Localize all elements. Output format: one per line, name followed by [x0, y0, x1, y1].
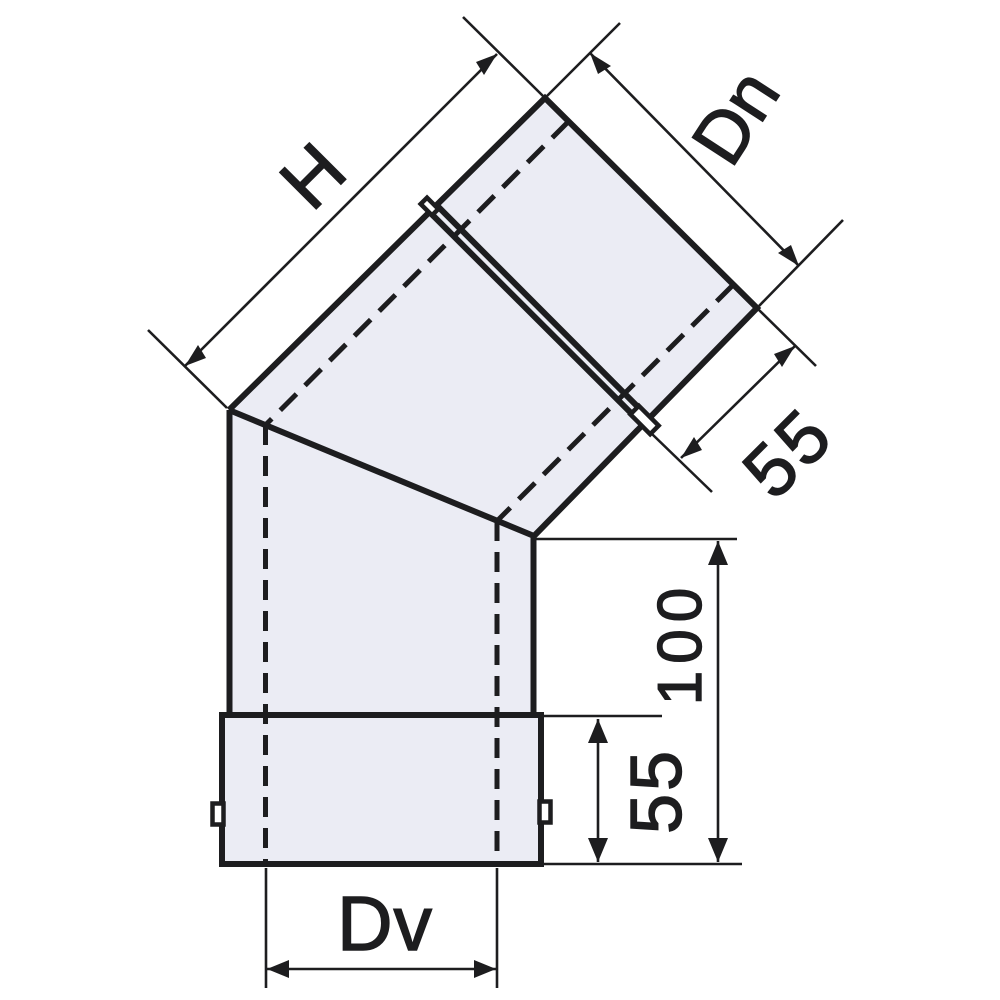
svg-text:55: 55	[617, 748, 697, 834]
svg-text:100: 100	[646, 581, 715, 705]
svg-text:Dv: Dv	[337, 881, 433, 967]
